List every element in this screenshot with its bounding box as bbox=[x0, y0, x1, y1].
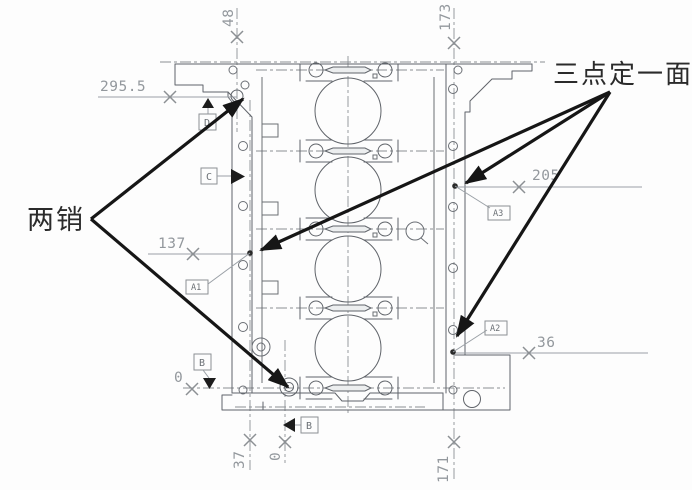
drawing-canvas: 295.5 137 0 205 36 48 173 37 0 171 D C B… bbox=[0, 0, 692, 490]
three-points-arrows bbox=[261, 92, 610, 336]
centerlines bbox=[160, 8, 545, 482]
datum-a3-label: A3 bbox=[493, 209, 503, 219]
locating-pin-holes bbox=[231, 90, 298, 396]
dim-36: 36 bbox=[537, 335, 555, 351]
datum-a2: A2 bbox=[450, 321, 507, 355]
technical-drawing-page: 295.5 137 0 205 36 48 173 37 0 171 D C B… bbox=[0, 0, 692, 490]
two-pins-annotation: 两销 bbox=[27, 205, 85, 236]
dim-37: 37 bbox=[232, 451, 248, 469]
dim-48: 48 bbox=[221, 9, 237, 27]
datum-c: C bbox=[201, 168, 245, 184]
three-points-annotation: 三点定一面 bbox=[553, 60, 692, 90]
datum-b-bottom-label: B bbox=[306, 421, 312, 432]
block-outline bbox=[175, 64, 532, 410]
datum-a3: A3 bbox=[452, 183, 510, 220]
datum-c-label: C bbox=[206, 172, 212, 183]
dim-171: 171 bbox=[436, 455, 452, 483]
datum-b-bottom: B bbox=[283, 417, 318, 433]
datum-a1-label: A1 bbox=[191, 283, 201, 293]
datum-a2-label: A2 bbox=[490, 324, 500, 334]
dim-173: 173 bbox=[438, 3, 454, 31]
dim-0-bottom: 0 bbox=[268, 452, 284, 461]
dim-295-5: 295.5 bbox=[100, 79, 146, 95]
datum-b-left-label: B bbox=[199, 358, 205, 369]
dim-137: 137 bbox=[158, 236, 186, 252]
dim-0-left: 0 bbox=[174, 370, 183, 386]
